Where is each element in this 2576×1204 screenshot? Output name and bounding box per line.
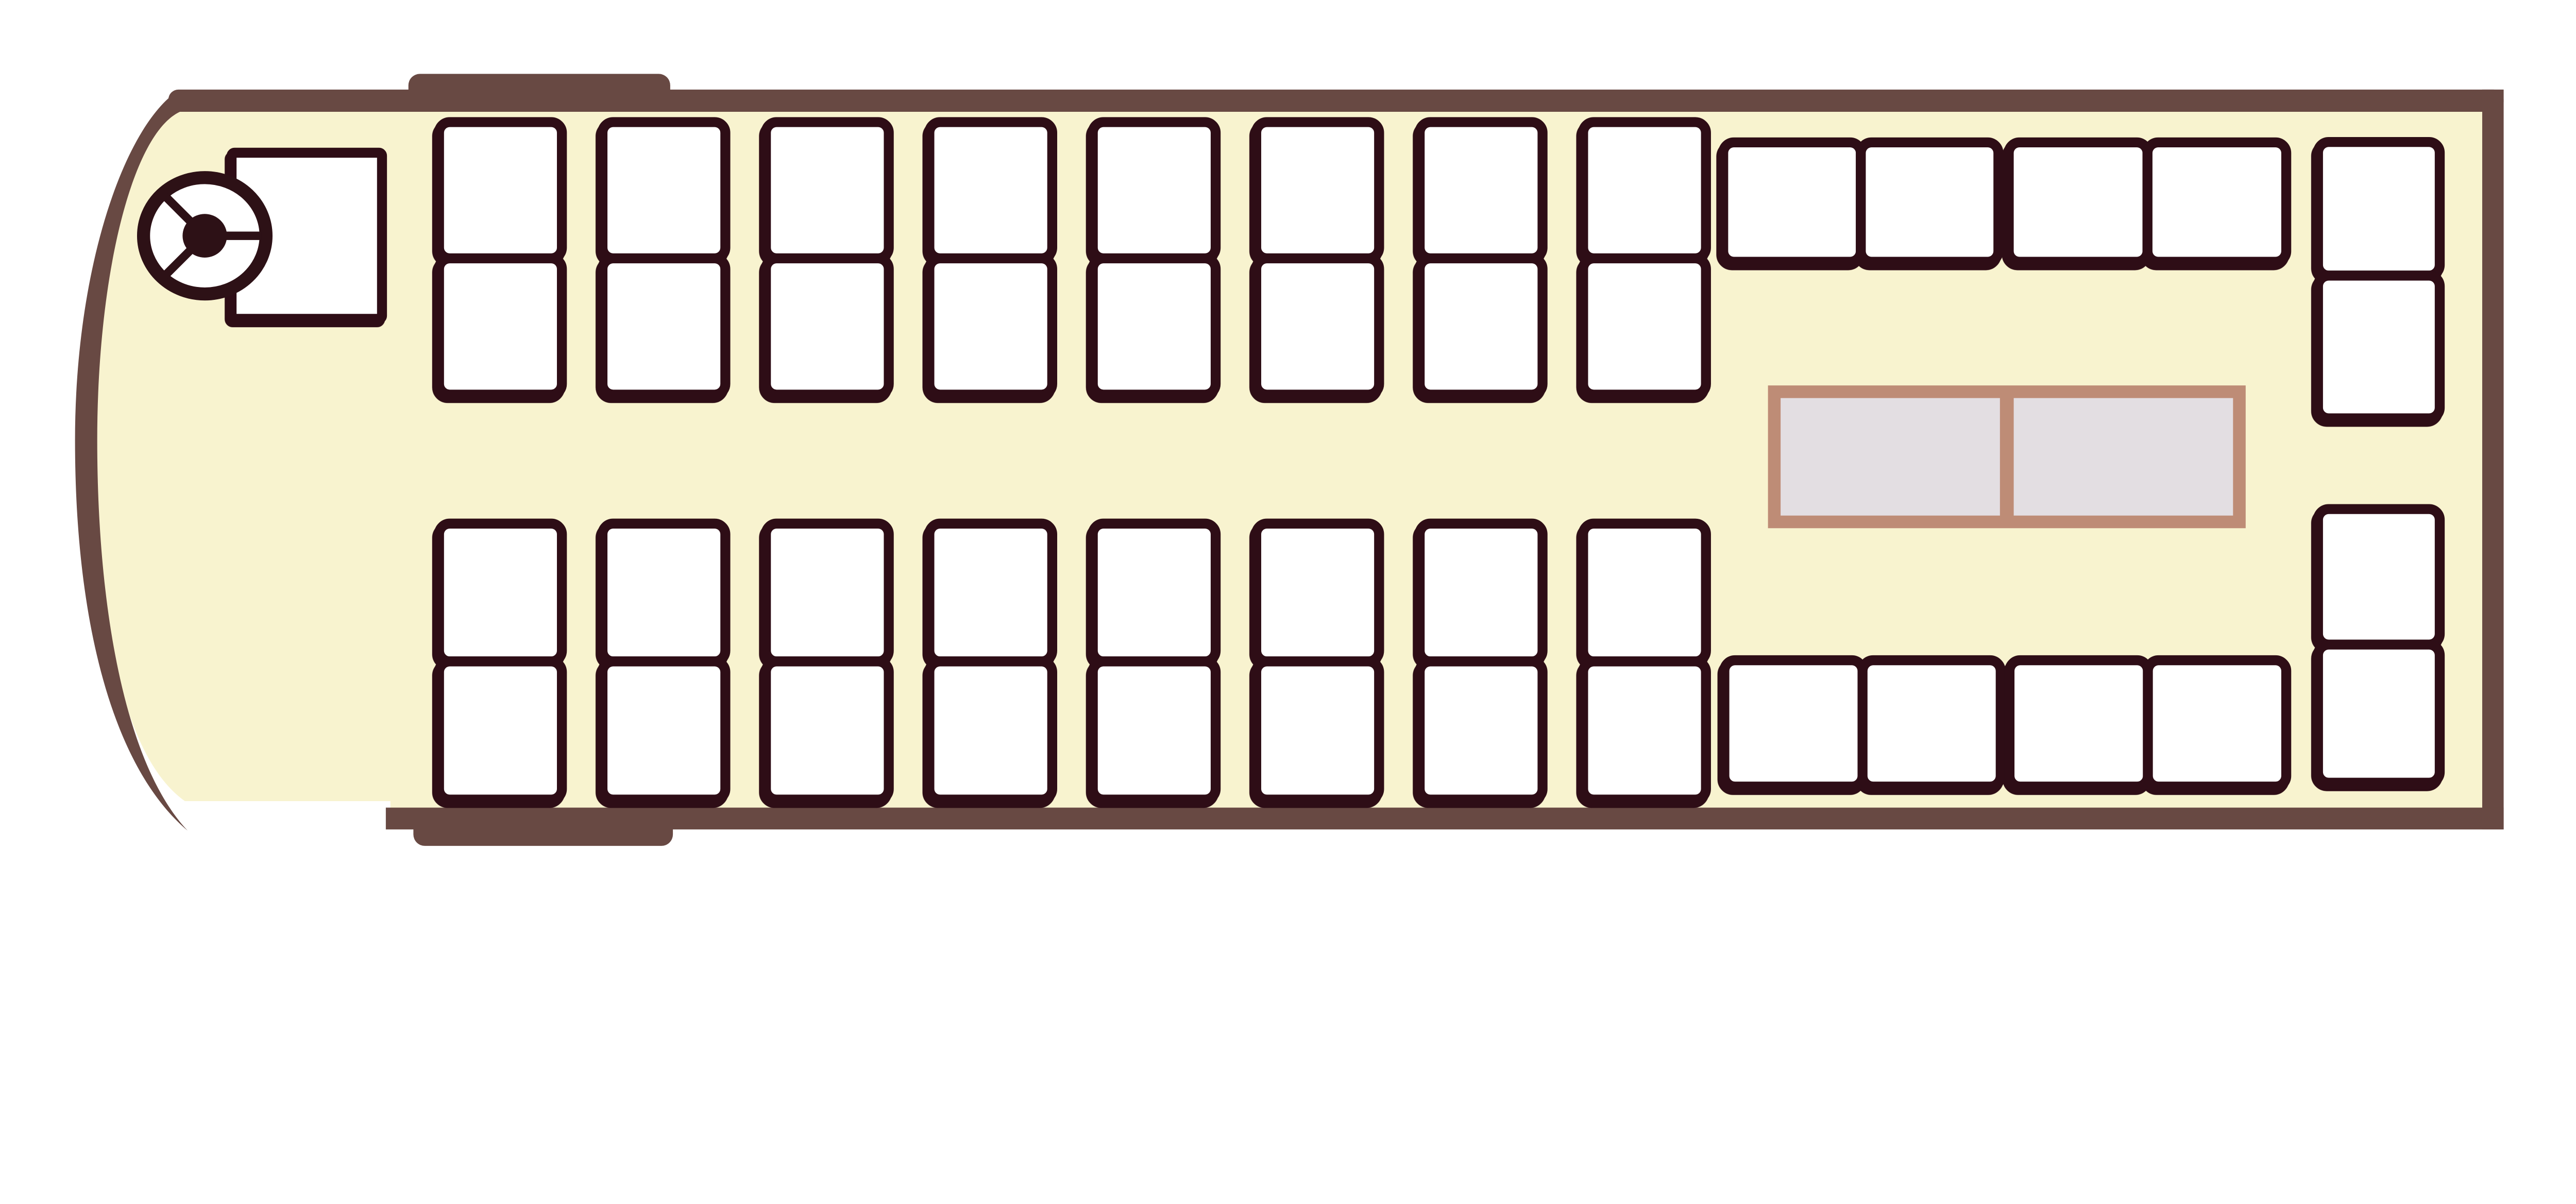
passenger-seat xyxy=(1420,122,1543,258)
passenger-seat xyxy=(439,122,562,258)
passenger-seat xyxy=(1724,660,1862,787)
passenger-seat xyxy=(602,662,725,800)
passenger-seat xyxy=(1583,662,1706,800)
passenger-seat xyxy=(439,662,562,800)
steering-wheel-hub xyxy=(182,214,227,258)
steering-wheel-icon xyxy=(144,178,266,294)
passenger-seat xyxy=(602,122,725,258)
bus-bottom-wall xyxy=(386,808,2504,829)
passenger-seat xyxy=(2318,276,2439,418)
passenger-seat xyxy=(1093,523,1215,661)
bus-right-wall xyxy=(2482,90,2504,829)
passenger-seat xyxy=(2148,660,2286,787)
passenger-seat xyxy=(2318,509,2439,645)
passenger-seat xyxy=(929,122,1052,258)
passenger-seat xyxy=(439,258,562,394)
passenger-seat xyxy=(1861,142,1998,262)
passenger-seat xyxy=(766,122,889,258)
passenger-seat xyxy=(1420,258,1543,394)
passenger-seat xyxy=(1583,523,1706,661)
passenger-seat xyxy=(1583,258,1706,394)
passenger-seat xyxy=(2318,645,2439,783)
passenger-seat xyxy=(2147,142,2286,262)
driver-area xyxy=(144,152,382,318)
bus-top-wall xyxy=(168,90,2504,112)
passenger-seat xyxy=(439,523,562,661)
passenger-seat xyxy=(602,523,725,661)
bus-floor-plan-diagram xyxy=(0,0,2576,894)
passenger-seat xyxy=(1093,662,1215,800)
passenger-seat xyxy=(1420,523,1543,661)
passenger-seat xyxy=(1256,122,1379,258)
passenger-seat xyxy=(1583,122,1706,258)
passenger-seat xyxy=(929,258,1052,394)
rear-table xyxy=(1768,385,2246,528)
passenger-seat xyxy=(1723,142,1861,262)
passenger-seat xyxy=(1420,662,1543,800)
rear-table-cell xyxy=(2014,398,2233,516)
rear-table-cell xyxy=(1781,398,2000,516)
passenger-seat xyxy=(1093,122,1215,258)
passenger-seat xyxy=(1862,660,2001,787)
passenger-seat xyxy=(929,523,1052,661)
passenger-seat xyxy=(766,258,889,394)
passenger-seat xyxy=(766,523,889,661)
passenger-seat xyxy=(1093,258,1215,394)
bus-floor-plan-page xyxy=(0,0,2576,894)
passenger-seat xyxy=(2009,142,2147,262)
passenger-seat xyxy=(1256,258,1379,394)
passenger-seat xyxy=(2009,660,2148,787)
passenger-seat xyxy=(766,662,889,800)
passenger-seat xyxy=(602,258,725,394)
passenger-seat xyxy=(1256,662,1379,800)
passenger-seat xyxy=(1256,523,1379,661)
passenger-seat xyxy=(929,662,1052,800)
passenger-seat xyxy=(2318,142,2439,276)
